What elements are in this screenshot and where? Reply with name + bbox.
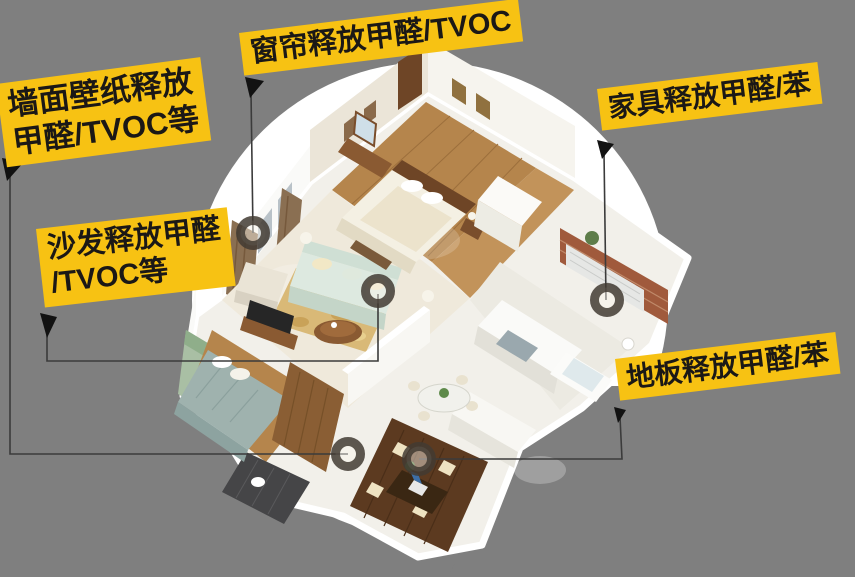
floor-lamp [300,232,312,244]
infographic-canvas: 墙面壁纸释放 甲醛/TVOC等 窗帘释放甲醛/TVOC 沙发释放甲醛 /TVOC… [0,0,855,577]
wall-marker-icon [336,442,361,467]
curtain-marker-icon [241,221,266,246]
floor-lamp-2 [422,290,434,302]
plant [585,231,599,245]
floor-marker-icon [407,447,432,472]
sofa-marker-icon [366,279,391,304]
toilet [251,477,265,487]
coffee-table [314,320,362,344]
furniture-marker-icon [595,288,620,313]
